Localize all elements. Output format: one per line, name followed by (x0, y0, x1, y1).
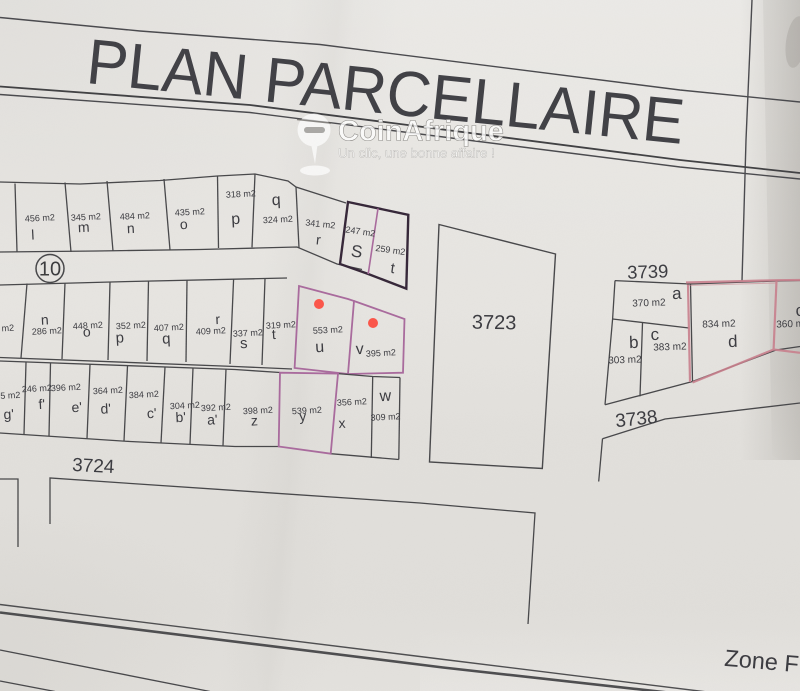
svg-text:360 m2: 360 m2 (776, 318, 800, 330)
svg-text:z: z (250, 412, 258, 428)
svg-text:3723: 3723 (472, 312, 517, 335)
svg-text:c': c' (146, 405, 157, 421)
svg-text:a': a' (207, 411, 218, 428)
svg-text:364 m2: 364 m2 (93, 385, 124, 397)
svg-text:246 m2: 246 m2 (22, 383, 53, 395)
svg-text:319 m2: 319 m2 (266, 319, 297, 331)
svg-text:a: a (672, 284, 683, 303)
svg-text:396 m2: 396 m2 (51, 382, 82, 394)
svg-text:q: q (162, 330, 171, 347)
svg-text:3738: 3738 (614, 407, 658, 432)
svg-text:g': g' (3, 406, 14, 423)
svg-text:395 m2: 395 m2 (366, 347, 397, 359)
svg-text:398 m2: 398 m2 (243, 405, 274, 417)
svg-text:n: n (126, 220, 135, 236)
svg-text:834 m2: 834 m2 (702, 318, 736, 330)
svg-text:318 m2: 318 m2 (226, 188, 257, 200)
svg-text:o: o (179, 216, 188, 232)
svg-text:Un clic, une bonne affaire !: Un clic, une bonne affaire ! (338, 146, 495, 161)
svg-text:539 m2: 539 m2 (292, 405, 323, 417)
svg-text:c: c (650, 325, 660, 344)
svg-text:b': b' (175, 409, 186, 426)
svg-text:w: w (378, 388, 392, 406)
svg-text:456 m2: 456 m2 (25, 212, 56, 224)
svg-text:10: 10 (39, 259, 61, 281)
svg-text:o: o (82, 323, 91, 339)
svg-text:303 m2: 303 m2 (608, 354, 642, 366)
svg-text:484 m2: 484 m2 (120, 210, 151, 222)
svg-text:m: m (77, 219, 89, 236)
svg-text:25 m2: 25 m2 (0, 390, 21, 401)
svg-text:d': d' (100, 400, 111, 417)
svg-text:324 m2: 324 m2 (263, 214, 294, 226)
svg-text:356 m2: 356 m2 (337, 396, 368, 408)
svg-text:309 m2: 309 m2 (370, 411, 401, 423)
svg-text:c: c (795, 301, 800, 320)
svg-text:s: s (240, 335, 248, 352)
svg-text:384 m2: 384 m2 (129, 389, 160, 401)
svg-text:e': e' (71, 399, 82, 416)
svg-text:CoinAfrique: CoinAfrique (338, 116, 504, 148)
svg-text:553 m2: 553 m2 (313, 324, 344, 336)
svg-text:x: x (338, 415, 346, 431)
svg-text:370 m2: 370 m2 (632, 297, 666, 309)
svg-text:q: q (271, 192, 281, 209)
svg-text:m2: m2 (1, 323, 14, 334)
svg-text:p: p (231, 211, 241, 228)
svg-text:f': f' (38, 396, 45, 412)
svg-text:b: b (629, 333, 639, 352)
svg-text:n: n (40, 311, 49, 327)
svg-text:v: v (355, 341, 364, 358)
svg-text:409 m2: 409 m2 (196, 325, 227, 337)
svg-text:p: p (115, 329, 124, 346)
svg-text:3724: 3724 (72, 455, 116, 478)
svg-text:337 m2: 337 m2 (233, 327, 264, 339)
svg-text:d: d (728, 332, 738, 351)
svg-text:u: u (315, 339, 325, 356)
svg-text:3739: 3739 (627, 260, 669, 282)
svg-text:y: y (299, 408, 307, 424)
